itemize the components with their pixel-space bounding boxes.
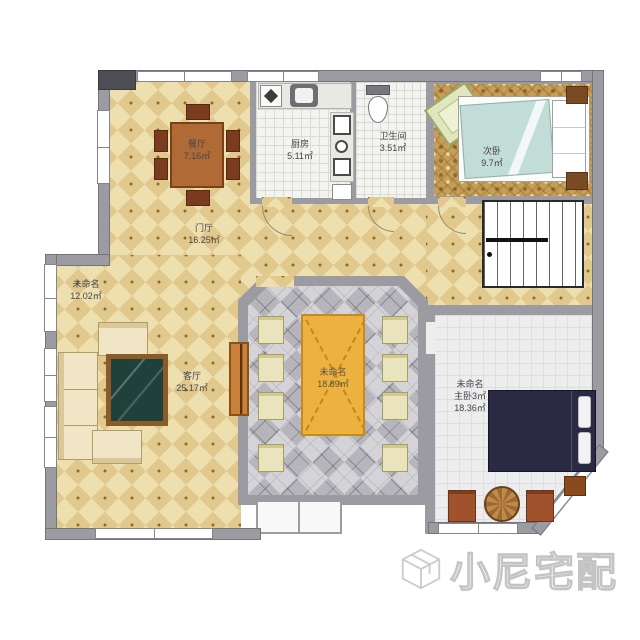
window-top-dining [137,71,232,82]
bay-round-table[interactable] [484,486,520,522]
window-top-kitchen [247,71,319,82]
label-living: 客厅 25.17㎡ [160,370,224,394]
center-chair-l4[interactable] [258,444,284,472]
label-unnamed-left-name: 未命名 [56,278,116,290]
kitchen-cabinet-corner [332,184,352,200]
label-living-area: 25.17㎡ [160,382,224,394]
bedroom2-nightstand-top[interactable] [566,86,588,104]
master-pillow-1 [578,396,591,428]
label-dining: 餐厅 7.16㎡ [167,138,227,162]
label-master-name: 未命名 [434,378,506,390]
label-unnamed-center-name: 未命名 [302,366,364,378]
staircase-divider [486,238,548,242]
label-hall-name: 门厅 [172,222,236,234]
label-unnamed-left-area: 12.02㎡ [56,290,116,302]
center-chair-r2[interactable] [382,354,408,382]
dining-chair-top[interactable] [186,104,210,120]
label-dining-name: 餐厅 [167,138,227,150]
kitchen-sink-basin [295,88,313,103]
label-unnamed-left: 未命名 12.02㎡ [56,278,116,302]
label-kitchen-name: 厨房 [270,138,330,150]
dining-chair-right-2[interactable] [226,158,240,180]
dining-chair-left-2[interactable] [154,158,168,180]
entrance-step-1 [256,500,300,534]
master-nightstand[interactable] [564,476,586,496]
window-left-dining [97,110,110,184]
entrance-step-2 [298,500,342,534]
dining-chair-left-1[interactable] [154,130,168,152]
watermark-cube-icon [398,546,444,592]
center-chair-r1[interactable] [382,316,408,344]
bedroom2-nightstand-bottom[interactable] [566,172,588,190]
label-bathroom-area: 3.51㎡ [360,142,426,154]
center-room-opening [256,276,294,287]
bay-chair-left[interactable] [448,490,476,522]
center-chair-r4[interactable] [382,444,408,472]
window-bottom-master [438,523,518,534]
kitchen-appliance-bottom [333,158,351,176]
label-kitchen: 厨房 5.11㎡ [270,138,330,162]
kitchen-appliance-round [335,140,348,153]
toilet-tank [366,85,390,95]
label-master-overlay: 主卧3㎡ [434,390,506,402]
staircase[interactable] [482,200,584,288]
wall-column [98,70,136,90]
center-chair-l2[interactable] [258,354,284,382]
dining-chair-bottom[interactable] [186,190,210,206]
staircase-post [487,252,492,257]
label-bedroom2-area: 9.7㎡ [462,157,522,169]
label-bedroom2: 次卧 9.7㎡ [462,145,522,169]
center-chair-r3[interactable] [382,392,408,420]
door-gap-master [426,322,436,354]
label-bedroom2-name: 次卧 [462,145,522,157]
floor-plan: 餐厅 7.16㎡ 厨房 5.11㎡ 卫生间 3.51㎡ 次卧 9.7㎡ 门厅 1… [0,0,640,640]
label-living-name: 客厅 [160,370,224,382]
center-piano[interactable] [229,342,249,416]
bay-chair-right[interactable] [526,490,554,522]
window-top-bedroom2 [540,71,582,82]
center-chair-l1[interactable] [258,316,284,344]
label-hall-area: 16.25㎡ [172,234,236,246]
kitchen-appliance-top [333,115,351,135]
master-pillow-2 [578,432,591,464]
bedroom2-pillow-area [552,100,586,178]
living-armchair-bottom[interactable] [92,430,142,464]
window-bottom-living [95,528,213,539]
living-loveseat-top[interactable] [98,322,148,356]
label-kitchen-area: 5.11㎡ [270,150,330,162]
label-hall: 门厅 16.25㎡ [172,222,236,246]
living-coffee-table[interactable] [106,354,168,426]
label-unnamed-center: 未命名 18.89㎡ [302,366,364,390]
label-unnamed-center-area: 18.89㎡ [302,378,364,390]
label-master-area: 18.36㎡ [434,402,506,414]
watermark: 小尼宅配 [398,540,618,598]
label-master: 未命名 主卧3㎡ 18.36㎡ [434,378,506,414]
label-bathroom-name: 卫生间 [360,130,426,142]
window-living-2 [44,406,57,468]
watermark-text: 小尼宅配 [450,540,618,598]
label-dining-area: 7.16㎡ [167,150,227,162]
label-bathroom: 卫生间 3.51㎡ [360,130,426,154]
center-chair-l3[interactable] [258,392,284,420]
dining-chair-right-1[interactable] [226,130,240,152]
window-living-1 [44,348,57,402]
